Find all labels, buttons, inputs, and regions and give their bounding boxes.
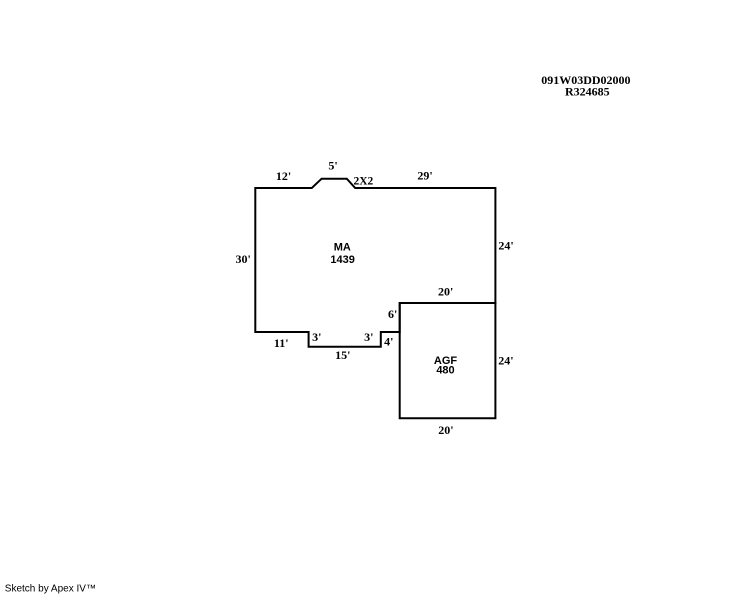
svg-text:24': 24' <box>498 354 513 368</box>
svg-text:480: 480 <box>436 365 454 377</box>
svg-text:2X2: 2X2 <box>354 176 374 188</box>
svg-text:MA: MA <box>334 241 351 253</box>
svg-text:15': 15' <box>335 348 350 362</box>
svg-text:5': 5' <box>328 159 337 173</box>
svg-text:20': 20' <box>438 285 453 299</box>
svg-text:20': 20' <box>438 423 453 437</box>
svg-text:3': 3' <box>364 330 373 344</box>
svg-text:12': 12' <box>276 169 291 183</box>
svg-text:R324685: R324685 <box>565 84 610 98</box>
svg-text:Sketch by Apex IV™: Sketch by Apex IV™ <box>5 584 96 595</box>
svg-text:30': 30' <box>236 252 251 266</box>
svg-text:6': 6' <box>388 307 397 321</box>
svg-text:24': 24' <box>498 239 513 253</box>
svg-text:1439: 1439 <box>330 254 354 266</box>
svg-text:11': 11' <box>274 336 289 350</box>
svg-text:29': 29' <box>417 169 432 183</box>
svg-text:3': 3' <box>312 330 321 344</box>
svg-text:4': 4' <box>384 335 393 349</box>
